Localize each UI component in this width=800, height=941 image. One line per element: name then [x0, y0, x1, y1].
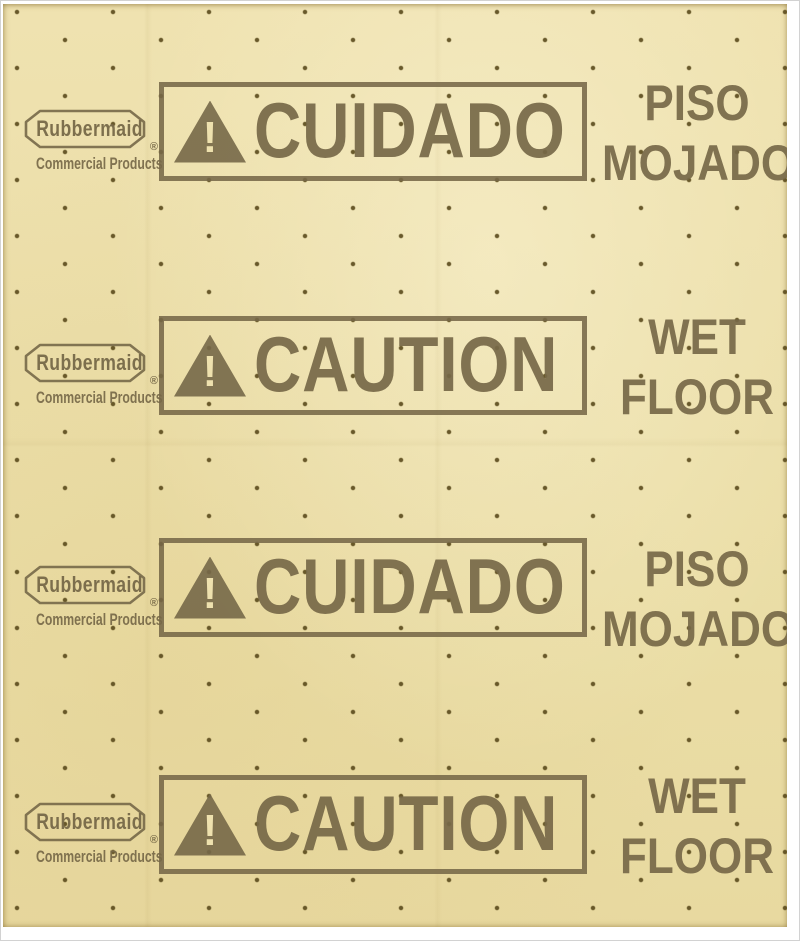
side-warning-text: WET FLOOR [589, 307, 787, 427]
banner-text: CAUTION [254, 784, 558, 866]
rubbermaid-logo: Rubbermaid ® Commercial Products [17, 565, 153, 630]
brand-name: Rubbermaid [36, 109, 134, 149]
registered-mark: ® [150, 834, 158, 846]
rubbermaid-logo: Rubbermaid ® Commercial Products [17, 343, 153, 408]
brand-subtitle: Commercial Products [36, 847, 134, 867]
warning-banner-cuidado: ! CUIDADO [159, 82, 587, 181]
brand-name: Rubbermaid [36, 802, 134, 842]
banner-text: CUIDADO [254, 91, 566, 173]
banner-text: CAUTION [254, 325, 558, 407]
registered-mark: ® [150, 141, 158, 153]
warning-triangle-icon: ! [174, 335, 246, 397]
warning-triangle-icon: ! [174, 101, 246, 163]
side-warning-text: PISO MOJADO [589, 73, 787, 193]
warning-banner-caution: ! CAUTION [159, 316, 587, 415]
warning-banner-cuidado: ! CUIDADO [159, 538, 587, 637]
side-line-2: MOJADO [602, 133, 787, 193]
rubbermaid-logo: Rubbermaid ® Commercial Products [17, 109, 153, 174]
side-line-1: PISO [602, 539, 787, 599]
side-line-2: MOJADO [602, 599, 787, 659]
side-warning-text: WET FLOOR [589, 766, 787, 886]
product-photo-frame: Rubbermaid ® Commercial Products ! CUIDA… [0, 0, 800, 941]
rubbermaid-logo-outline: Rubbermaid ® [24, 802, 146, 842]
brand-subtitle: Commercial Products [36, 610, 134, 630]
absorbent-pad: Rubbermaid ® Commercial Products ! CUIDA… [3, 4, 787, 927]
banner-text: CUIDADO [254, 547, 566, 629]
exclamation-mark: ! [203, 572, 218, 619]
warning-triangle-icon: ! [174, 794, 246, 856]
brand-subtitle: Commercial Products [36, 388, 134, 408]
side-line-2: FLOOR [602, 826, 787, 886]
warning-triangle-icon: ! [174, 557, 246, 619]
exclamation-mark: ! [203, 809, 218, 856]
rubbermaid-logo: Rubbermaid ® Commercial Products [17, 802, 153, 867]
brand-subtitle: Commercial Products [36, 154, 134, 174]
exclamation-mark: ! [203, 350, 218, 397]
registered-mark: ® [150, 375, 158, 387]
brand-name: Rubbermaid [36, 343, 134, 383]
rubbermaid-logo-outline: Rubbermaid ® [24, 343, 146, 383]
rubbermaid-logo-outline: Rubbermaid ® [24, 109, 146, 149]
rubbermaid-logo-outline: Rubbermaid ® [24, 565, 146, 605]
warning-banner-caution: ! CAUTION [159, 775, 587, 874]
side-line-2: FLOOR [602, 367, 787, 427]
side-line-1: WET [602, 307, 787, 367]
registered-mark: ® [150, 597, 158, 609]
exclamation-mark: ! [203, 116, 218, 163]
side-line-1: WET [602, 766, 787, 826]
side-line-1: PISO [602, 73, 787, 133]
brand-name: Rubbermaid [36, 565, 134, 605]
side-warning-text: PISO MOJADO [589, 539, 787, 659]
